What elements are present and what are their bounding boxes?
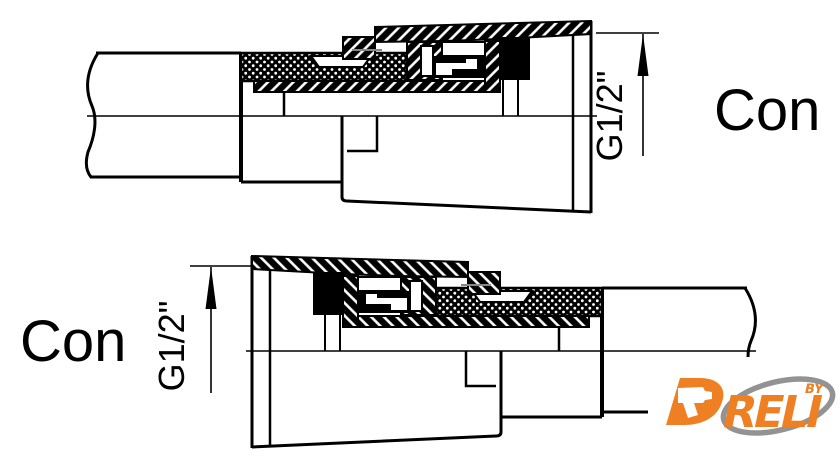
cone-label-bottom: Con [20,309,126,374]
bottom-assembly-drawing: G1/2" Con [20,256,840,474]
technical-drawing-page: G1/2" Con G1/2" Con RELI BY [0,0,840,474]
brand-by-label: BY [803,382,825,397]
cone-label-top: Con [714,78,820,143]
top-assembly-drawing: G1/2" Con [86,21,820,213]
drawing-canvas: G1/2" Con G1/2" Con RELI BY [0,0,840,474]
arrow-up-icon [206,267,217,309]
thread-dimension-label-top: G1/2" [589,71,630,162]
thread-dimension-label-bottom: G1/2" [151,301,192,392]
arrow-up-icon [638,34,649,76]
top-fitting-geometry [86,21,597,213]
dimension-g12-bottom [190,266,253,393]
